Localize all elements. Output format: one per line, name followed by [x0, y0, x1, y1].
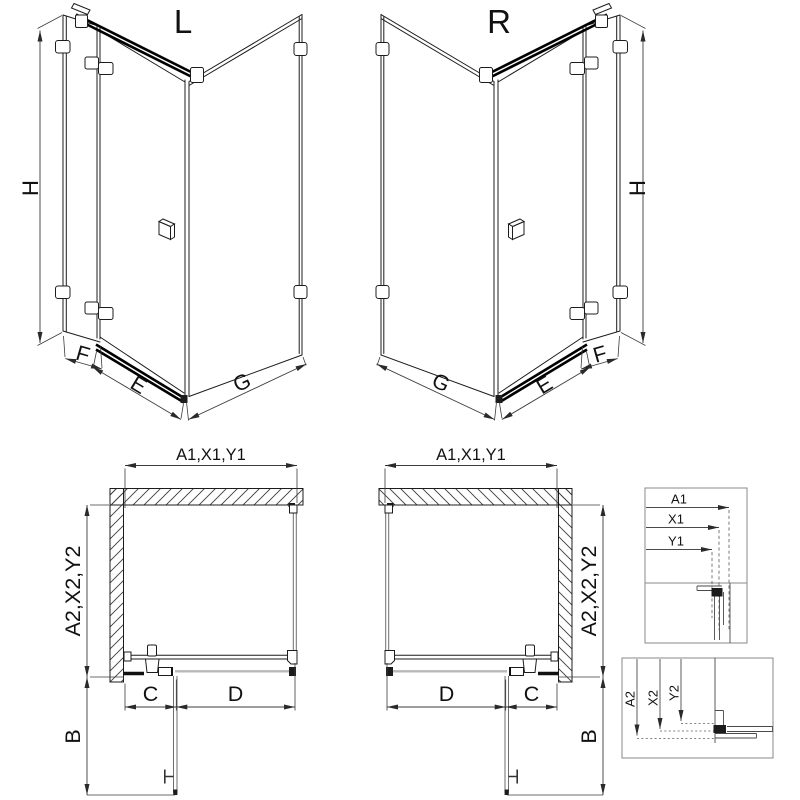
iso-right-side-panel-dim-label: G: [428, 368, 453, 397]
plan-left-depth-dim-label: A2,X2,Y2: [61, 546, 85, 637]
iso-view-left: L H F E G: [18, 3, 307, 421]
plan-right-depth-dim-label: A2,X2,Y2: [577, 546, 601, 637]
iso-right-height-dim-label: H: [625, 180, 650, 196]
iso-view-right: R H F E G: [376, 3, 650, 421]
detail-depth-y2-label: Y2: [667, 685, 682, 701]
plan-right-width-dim-label: A1,X1,Y1: [436, 446, 506, 464]
plan-left-door-segment-label: D: [228, 682, 244, 706]
detail-width-a1-label: A1: [671, 492, 687, 507]
iso-left-variant-label: L: [174, 3, 192, 40]
plan-left-width-dim-label: A1,X1,Y1: [176, 446, 246, 464]
iso-right-variant-label: R: [487, 3, 511, 40]
iso-left-height-dim-label: H: [18, 180, 43, 196]
plan-left-swing-dim-label: B: [61, 729, 85, 743]
plan-view-right: A1,X1,Y1 A2,X2,Y2 D C B: [379, 446, 603, 795]
plan-right-hinge-segment-label: C: [524, 682, 540, 706]
plan-view-left: A1,X1,Y1 A2,X2,Y2 C D B: [61, 446, 303, 795]
detail-box-width: A1 X1 Y1: [645, 488, 747, 643]
detail-box-depth: A2 X2 Y2: [622, 658, 773, 758]
plan-right-door-segment-label: D: [439, 682, 455, 706]
plan-right-swing-dim-label: B: [577, 729, 601, 743]
iso-right-door-dim-label: E: [532, 371, 557, 399]
iso-left-fixed-panel-dim-label: F: [73, 341, 92, 368]
iso-right-fixed-panel-dim-label: F: [590, 341, 609, 368]
technical-drawing-sheet: L H F E G R H F E G A1,X1,Y1 A2,X2,Y2 C …: [0, 0, 800, 800]
detail-depth-a2-label: A2: [623, 691, 638, 707]
plan-left-hinge-segment-label: C: [143, 682, 159, 706]
iso-left-door-dim-label: E: [126, 371, 151, 399]
detail-width-x1-label: X1: [668, 512, 684, 527]
shower-enclosure-diagram: L H F E G R H F E G A1,X1,Y1 A2,X2,Y2 C …: [0, 0, 800, 800]
detail-width-y1-label: Y1: [668, 534, 684, 549]
detail-depth-x2-label: X2: [646, 690, 661, 706]
iso-left-side-panel-dim-label: G: [229, 368, 254, 397]
